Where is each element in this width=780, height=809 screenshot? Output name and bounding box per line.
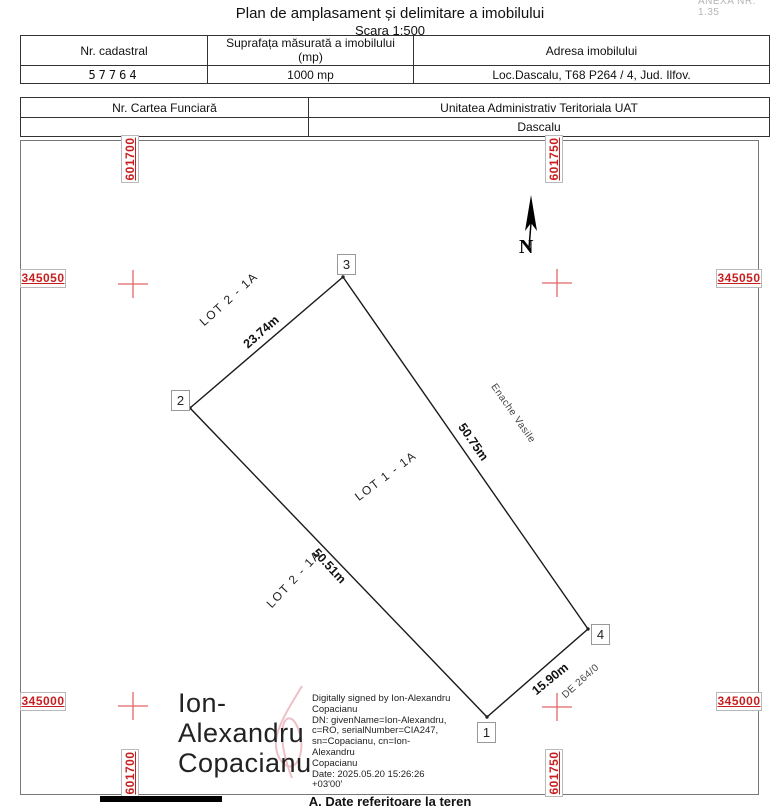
value-suprafata: 1000 mp [208, 66, 414, 83]
cadastral-info-table: Nr. cadastral Suprafața măsurată a imobi… [20, 35, 770, 84]
cadastral-plan-document: { "page": { "anexa": "ANEXA NR. 1.35", "… [0, 0, 780, 800]
next-table-black-bar [100, 796, 222, 802]
digital-signature-details: Digitally signed by Ion-Alexandru Copaci… [312, 694, 452, 791]
grid-label-bottom-left: 601700 [121, 749, 139, 797]
vertex-label-3: 3 [337, 254, 356, 275]
vertex-label-4: 4 [591, 624, 610, 645]
grid-label-left-bottom: 345000 [20, 692, 66, 711]
grid-label-bottom-right: 601750 [545, 749, 563, 797]
signer-name: Ion- Alexandru Copacianu [178, 688, 312, 778]
vertex-label-1: 1 [477, 722, 496, 743]
north-letter: N [519, 236, 533, 259]
header-adresa: Adresa imobilului [414, 36, 769, 66]
value-nr-cadastral: 57764 [21, 66, 208, 83]
header-carte-funciara: Nr. Cartea Funciară [21, 98, 309, 118]
value-adresa: Loc.Dascalu, T68 P264 / 4, Jud. Ilfov. [414, 66, 769, 83]
grid-label-top-right: 601750 [545, 135, 563, 183]
value-uat: Dascalu [309, 118, 769, 136]
carte-funciara-table: Nr. Cartea Funciară Unitatea Administrat… [20, 97, 770, 137]
grid-label-right-bottom: 345000 [716, 692, 762, 711]
grid-label-top-left: 601700 [121, 135, 139, 183]
grid-label-left-top: 345050 [20, 269, 66, 288]
vertex-label-2: 2 [171, 390, 190, 411]
value-carte-funciara [21, 118, 309, 136]
grid-label-right-top: 345050 [716, 269, 762, 288]
header-suprafata: Suprafața măsurată a imobilului (mp) [208, 36, 414, 66]
header-nr-cadastral: Nr. cadastral [21, 36, 208, 66]
page-title: Plan de amplasament și delimitare a imob… [0, 5, 780, 22]
header-uat: Unitatea Administrativ Teritoriala UAT [309, 98, 769, 118]
